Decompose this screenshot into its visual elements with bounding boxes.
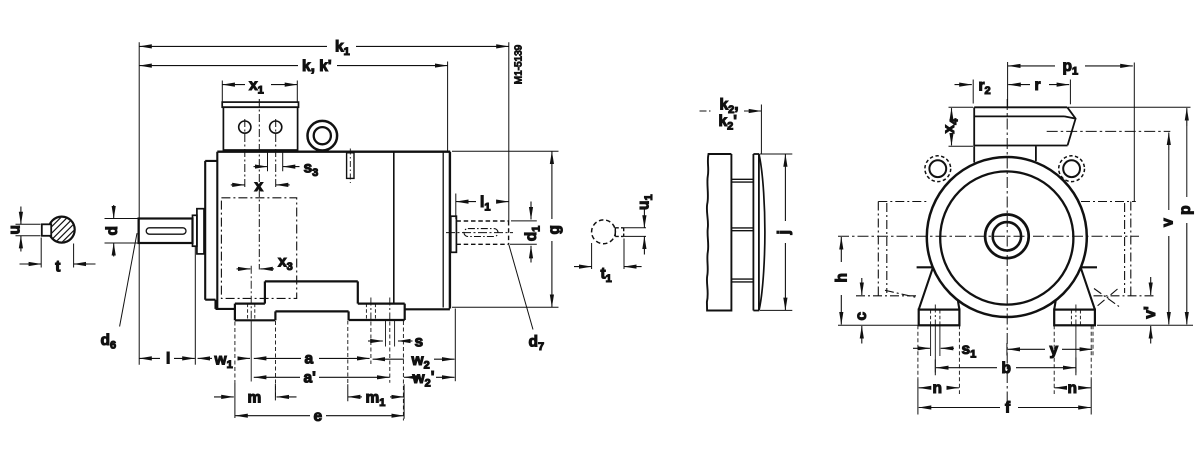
svg-text:d7: d7 [529, 334, 545, 354]
svg-text:b: b [1002, 360, 1011, 377]
svg-text:u1: u1 [636, 194, 656, 210]
svg-text:M1-5139: M1-5139 [514, 44, 525, 84]
svg-text:f: f [1005, 400, 1011, 417]
svg-text:w2': w2' [412, 369, 435, 390]
svg-text:t: t [55, 259, 60, 276]
svg-text:s: s [415, 334, 424, 351]
svg-text:x3: x3 [278, 254, 293, 274]
svg-text:m: m [248, 389, 262, 406]
svg-text:x4: x4 [941, 118, 961, 134]
svg-text:e: e [314, 408, 323, 425]
svg-text:v: v [1159, 218, 1176, 227]
svg-text:n: n [933, 380, 942, 397]
svg-text:p1: p1 [1063, 58, 1079, 78]
svg-text:h: h [833, 273, 850, 282]
svg-text:d1: d1 [523, 226, 543, 242]
svg-text:r2: r2 [979, 78, 991, 98]
svg-text:c: c [853, 312, 870, 321]
svg-text:x: x [255, 178, 264, 195]
svg-text:d: d [104, 226, 121, 235]
svg-text:g: g [546, 225, 563, 234]
svg-text:n: n [1068, 380, 1077, 397]
svg-text:l: l [166, 351, 170, 368]
svg-text:t1: t1 [601, 266, 612, 286]
svg-text:a': a' [304, 370, 316, 387]
svg-text:x1: x1 [249, 77, 264, 97]
svg-text:u: u [7, 225, 24, 234]
svg-text:m1: m1 [366, 389, 386, 409]
svg-text:k1: k1 [335, 39, 350, 59]
svg-text:a: a [305, 351, 314, 368]
svg-text:v': v' [1142, 306, 1159, 318]
svg-text:y: y [1050, 342, 1059, 359]
svg-text:s3: s3 [304, 160, 319, 180]
svg-text:w1: w1 [214, 351, 233, 371]
svg-text:w2: w2 [411, 352, 430, 372]
svg-text:j: j [776, 230, 793, 235]
svg-text:k, k': k, k' [302, 58, 332, 75]
svg-text:l1: l1 [480, 194, 490, 214]
svg-text:r: r [1035, 77, 1041, 94]
svg-text:p: p [1177, 205, 1194, 214]
svg-text:s1: s1 [962, 341, 977, 361]
svg-text:d6: d6 [101, 332, 117, 352]
